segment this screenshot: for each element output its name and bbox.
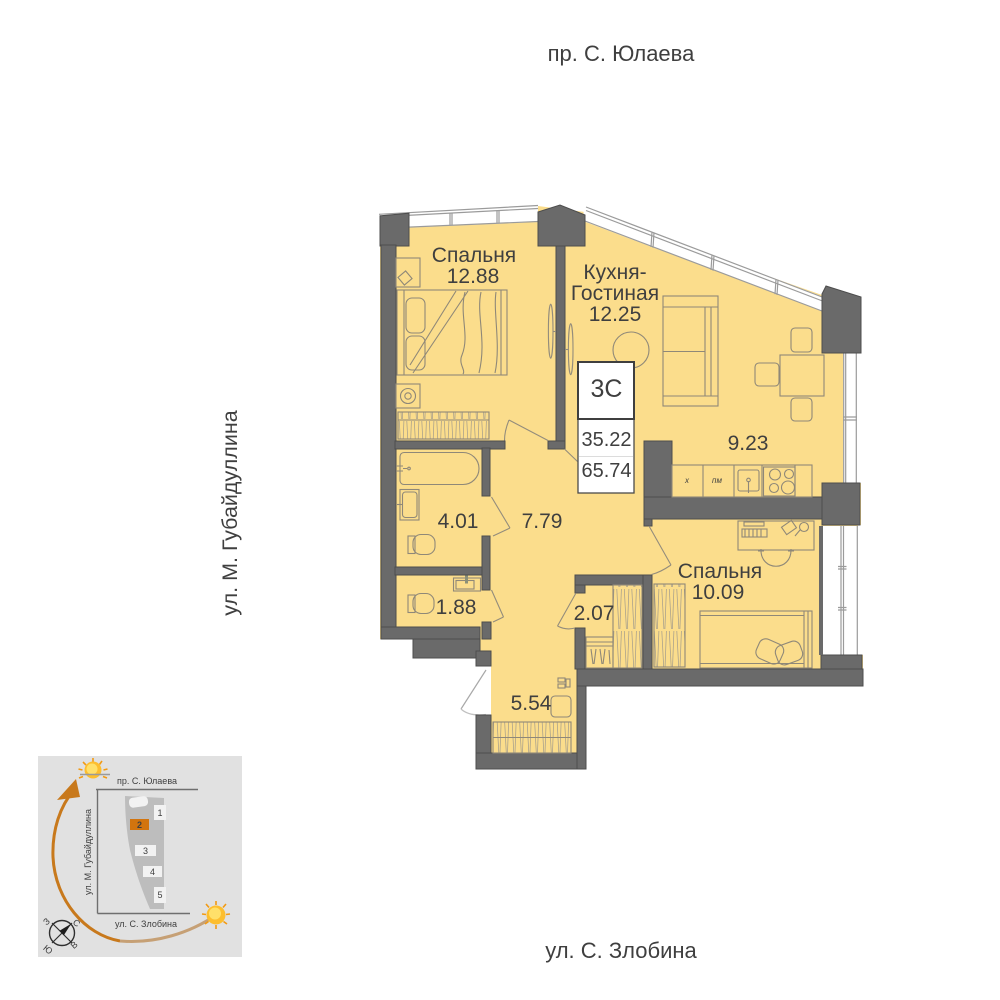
svg-text:2: 2 xyxy=(137,820,142,830)
svg-text:12.25: 12.25 xyxy=(589,303,642,326)
svg-text:4.01: 4.01 xyxy=(438,510,479,533)
svg-text:Гостиная: Гостиная xyxy=(571,282,659,305)
svg-text:1.88: 1.88 xyxy=(436,596,477,619)
svg-text:Кухня-: Кухня- xyxy=(583,261,646,284)
svg-text:Спальня: Спальня xyxy=(678,560,762,583)
svg-text:пм: пм xyxy=(712,476,722,485)
svg-text:1: 1 xyxy=(157,808,162,818)
svg-text:ул. С. Злобина: ул. С. Злобина xyxy=(545,938,697,963)
svg-text:2.07: 2.07 xyxy=(574,602,615,625)
svg-text:9.23: 9.23 xyxy=(728,432,769,455)
svg-text:4: 4 xyxy=(150,867,155,877)
svg-text:12.88: 12.88 xyxy=(447,265,500,288)
svg-text:ул. М. Губайдуллина: ул. М. Губайдуллина xyxy=(218,410,242,615)
svg-text:пр. С. Юлаева: пр. С. Юлаева xyxy=(548,41,695,66)
svg-text:ул. С. Злобина: ул. С. Злобина xyxy=(115,919,177,929)
svg-text:35.22: 35.22 xyxy=(581,429,631,451)
svg-text:10.09: 10.09 xyxy=(692,581,745,604)
svg-text:3С: 3С xyxy=(591,375,623,403)
svg-text:ул. М. Губайдуллина: ул. М. Губайдуллина xyxy=(83,809,93,895)
svg-text:пр. С. Юлаева: пр. С. Юлаева xyxy=(117,776,177,786)
svg-text:3: 3 xyxy=(143,846,148,856)
svg-text:7.79: 7.79 xyxy=(522,510,563,533)
svg-text:65.74: 65.74 xyxy=(581,460,631,482)
svg-text:5: 5 xyxy=(157,890,162,900)
svg-text:Спальня: Спальня xyxy=(432,244,516,267)
svg-text:5.54: 5.54 xyxy=(511,692,552,715)
